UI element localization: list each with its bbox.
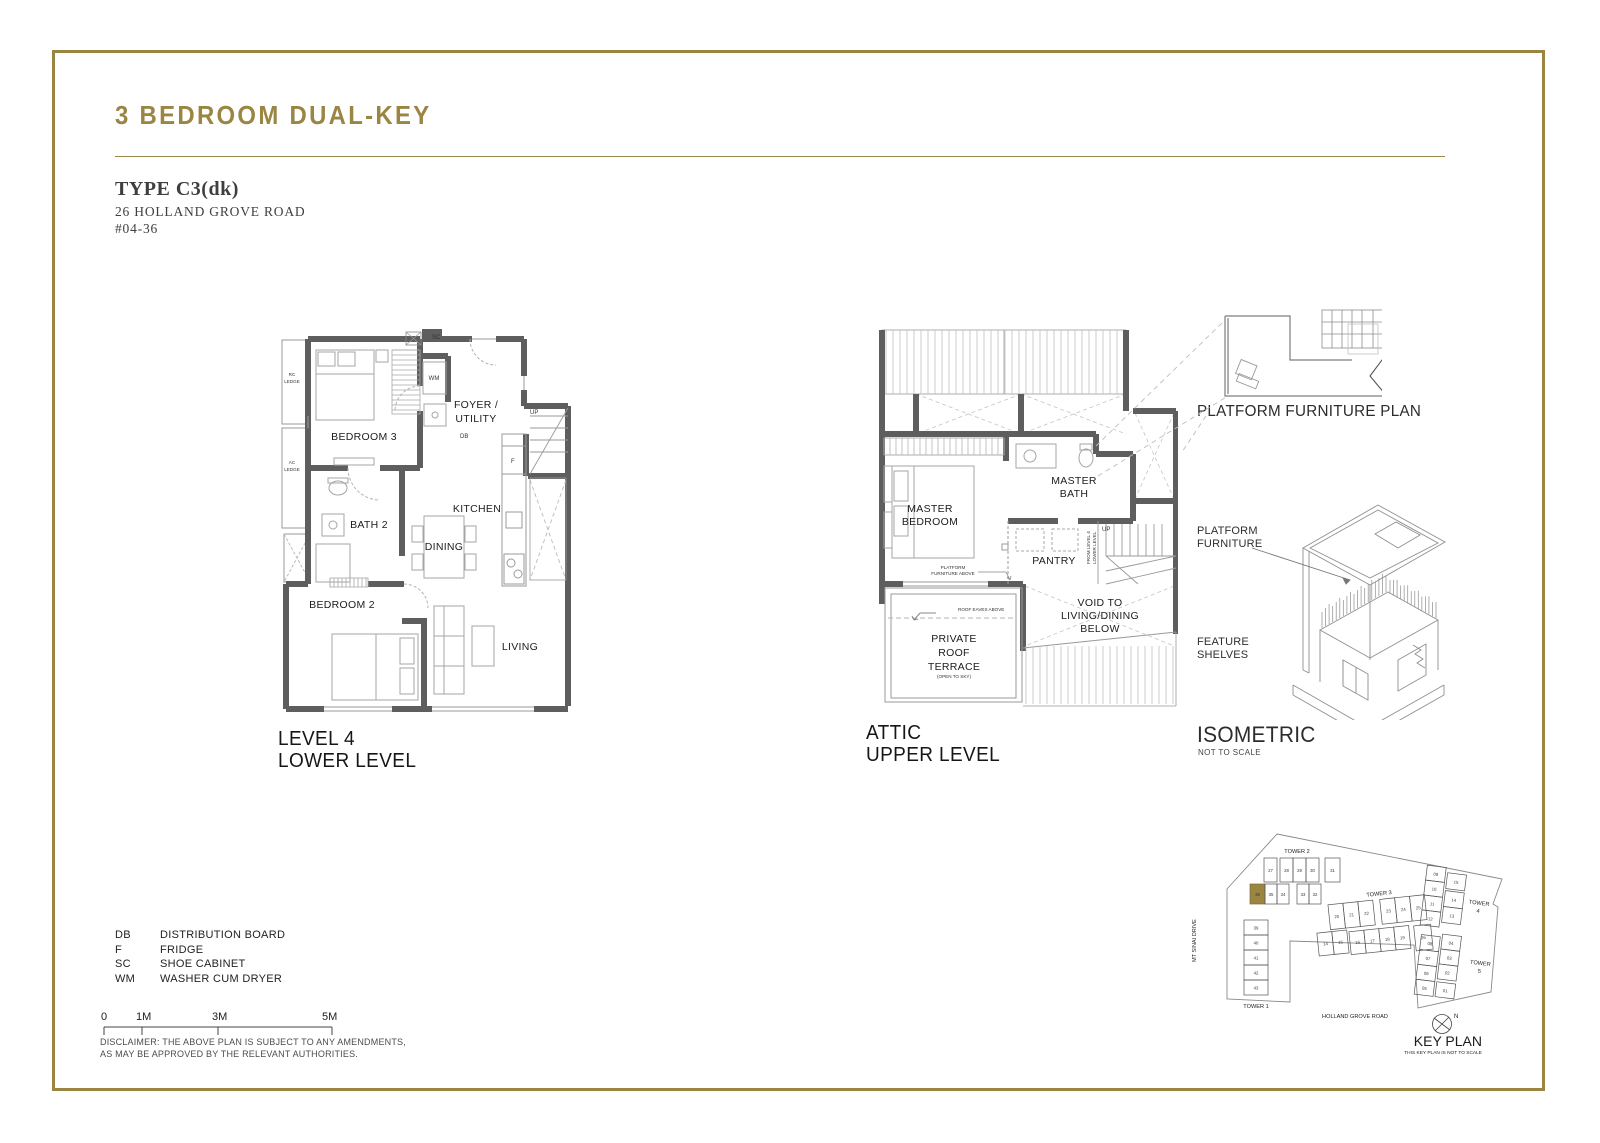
bedroom3-furniture	[316, 350, 388, 465]
isometric-title: ISOMETRIC	[1197, 722, 1316, 748]
svg-text:07: 07	[1425, 956, 1431, 962]
svg-text:TERRACE: TERRACE	[928, 661, 980, 673]
svg-text:29: 29	[1297, 868, 1302, 873]
kitchen-counter	[502, 434, 526, 586]
svg-text:34: 34	[1281, 892, 1286, 897]
svg-text:18: 18	[1385, 937, 1391, 943]
svg-text:LIVING/DINING: LIVING/DINING	[1061, 610, 1139, 622]
title-divider	[115, 156, 1445, 157]
svg-text:01: 01	[1443, 988, 1449, 994]
svg-text:15: 15	[1338, 939, 1344, 945]
svg-text:BEDROOM: BEDROOM	[902, 516, 958, 528]
platform-furniture-plan	[1192, 298, 1382, 413]
svg-text:17: 17	[1370, 938, 1376, 944]
platform-stair-grid	[1322, 310, 1382, 394]
wm-label: WM	[429, 376, 440, 382]
keyplan-subtitle: THIS KEY PLAN IS NOT TO SCALE	[1404, 1050, 1482, 1056]
bath2-label: BATH 2	[350, 519, 388, 531]
svg-text:ROOF: ROOF	[938, 647, 970, 659]
scale-bar-line	[104, 1027, 332, 1035]
roof-hatch	[882, 330, 1126, 394]
unit-type-label: TYPE C3(dk)	[115, 178, 239, 201]
svg-text:FURNITURE ABOVE: FURNITURE ABOVE	[931, 571, 974, 576]
tower2-label: TOWER 2	[1284, 849, 1309, 855]
legend-row: SC SHOE CABINET	[115, 957, 285, 972]
room-labels: RC LEDGE AC LEDGE BEDROOM 3 BATH 2 FOYER…	[284, 335, 538, 653]
address-line: 26 HOLLAND GROVE ROAD	[115, 204, 305, 220]
attic-up-label: UP	[1102, 527, 1110, 533]
from-level-label: FROM LEVEL 4	[1086, 531, 1091, 564]
platform-above-label: PLATFORM	[941, 565, 966, 570]
svg-text:02: 02	[1445, 970, 1451, 976]
tower5-label: TOWER	[1470, 960, 1491, 968]
svg-text:19: 19	[1400, 935, 1406, 941]
svg-text:33: 33	[1301, 892, 1306, 897]
svg-text:0: 0	[101, 1011, 107, 1023]
roof-eaves-label: ROOF EAVES ABOVE	[958, 607, 1004, 612]
void-label: VOID TO	[1078, 597, 1123, 609]
utility-fixtures	[423, 362, 446, 426]
svg-text:21: 21	[1349, 912, 1355, 918]
living-furniture	[434, 606, 494, 694]
db-label: DB	[460, 434, 468, 440]
svg-text:27: 27	[1268, 868, 1273, 873]
isometric-subtitle: NOT TO SCALE	[1198, 748, 1261, 757]
svg-text:UTILITY: UTILITY	[455, 413, 496, 425]
bedroom2-label: BEDROOM 2	[309, 599, 375, 611]
tower4-label: TOWER	[1468, 900, 1489, 908]
isometric-drawing	[1248, 470, 1448, 720]
terrace-border	[885, 588, 1022, 702]
svg-text:04: 04	[1448, 940, 1454, 946]
tower1-label: TOWER 1	[1243, 1004, 1268, 1010]
bedroom2-furniture	[332, 634, 418, 700]
svg-text:30: 30	[1310, 868, 1315, 873]
tower1: 39 40 41 42 43 TOWER 1	[1243, 920, 1268, 1010]
platform-plan-title: PLATFORM FURNITURE PLAN	[1197, 403, 1421, 421]
svg-text:31: 31	[1330, 868, 1335, 873]
svg-text:LEDGE: LEDGE	[284, 467, 300, 472]
pfa-leader	[978, 572, 1011, 580]
north-compass: N	[1433, 1014, 1459, 1034]
svg-text:5: 5	[1477, 969, 1481, 975]
svg-text:43: 43	[1254, 986, 1259, 991]
svg-text:23: 23	[1386, 908, 1392, 914]
svg-text:39: 39	[1254, 926, 1259, 931]
attic-wardrobe	[884, 438, 1004, 455]
platform-chair	[1236, 360, 1259, 389]
iso-feature-shelves-label: FEATURE SHELVES	[1197, 636, 1249, 662]
svg-text:42: 42	[1254, 971, 1259, 976]
svg-text:14: 14	[1451, 897, 1457, 903]
svg-text:LOWER LEVEL: LOWER LEVEL	[1092, 531, 1097, 564]
tower5: 08 07 06 05 04 03 02 01 TOWER 5	[1414, 932, 1493, 1003]
living-label: LIVING	[502, 641, 538, 653]
master-bath-fixtures	[1016, 444, 1093, 468]
svg-text:24: 24	[1401, 907, 1407, 913]
legend-row: DB DISTRIBUTION BOARD	[115, 928, 285, 943]
f-label: F	[511, 459, 515, 465]
svg-text:08: 08	[1427, 941, 1433, 947]
void-hatch	[1023, 632, 1176, 706]
terrace-label: PRIVATE	[931, 633, 976, 645]
svg-text:22: 22	[1364, 911, 1370, 917]
rc-ledge-label: RC	[289, 372, 296, 377]
svg-text:15: 15	[1453, 880, 1459, 886]
road-mt-sinai: MT SINAI DRIVE	[1192, 919, 1198, 962]
platform-outline	[1225, 313, 1382, 396]
iso-structure	[1293, 505, 1445, 720]
svg-text:09: 09	[1433, 872, 1439, 878]
svg-text:11: 11	[1430, 901, 1436, 907]
iso-balustrade-2	[1390, 580, 1436, 618]
legend-row: F FRIDGE	[115, 943, 285, 958]
svg-text:10: 10	[1431, 886, 1437, 892]
tower3-label: TOWER 3	[1366, 890, 1392, 899]
lower-level-caption: LEVEL 4 LOWER LEVEL	[278, 728, 416, 772]
highlighted-unit: 36	[1255, 892, 1260, 897]
tower3: TOWER 3 20 21 22 23 24 25 14 15 16 17 18…	[1313, 886, 1433, 961]
keyplan: TOWER 2 27 28 29 30 31 36 35 34 33 32 39…	[1180, 812, 1510, 1058]
ac-ledge-label: AC	[289, 460, 296, 465]
svg-text:28: 28	[1284, 868, 1289, 873]
svg-text:06: 06	[1424, 971, 1430, 977]
lower-level-floor-plan: RC LEDGE AC LEDGE BEDROOM 3 BATH 2 FOYER…	[272, 316, 572, 716]
road-holland-grove: HOLLAND GROVE ROAD	[1322, 1014, 1388, 1020]
bath2-fixtures	[316, 478, 350, 582]
page-title: 3 BEDROOM DUAL-KEY	[115, 100, 431, 131]
svg-text:05: 05	[1422, 986, 1428, 992]
svg-text:41: 41	[1254, 956, 1259, 961]
svg-text:35: 35	[1269, 892, 1274, 897]
svg-text:BELOW: BELOW	[1080, 623, 1119, 635]
svg-text:4: 4	[1476, 909, 1480, 915]
tower2: TOWER 2 27 28 29 30 31 36 35 34 33 32	[1250, 849, 1340, 904]
svg-text:40: 40	[1254, 941, 1259, 946]
attic-floor-plan: MASTER BEDROOM MASTER BATH PANTRY UP PLA…	[858, 316, 1178, 716]
master-bath-label: MASTER	[1051, 475, 1097, 487]
iso-balustrade	[1322, 574, 1386, 628]
svg-text:03: 03	[1447, 955, 1453, 961]
svg-text:5M: 5M	[322, 1011, 337, 1023]
up-label: UP	[530, 410, 538, 416]
north-label: N	[1454, 1014, 1458, 1020]
svg-text:12: 12	[1428, 916, 1434, 922]
foyer-label: FOYER /	[454, 399, 498, 411]
thin-lines	[903, 521, 1008, 586]
svg-text:13: 13	[1449, 913, 1455, 919]
svg-text:BATH: BATH	[1060, 488, 1088, 500]
svg-text:1M: 1M	[136, 1011, 151, 1023]
attic-caption: ATTIC UPPER LEVEL	[866, 722, 1000, 766]
keyplan-title: KEY PLAN	[1414, 1033, 1482, 1049]
sc-label: SC	[432, 335, 441, 341]
svg-text:(OPEN TO SKY): (OPEN TO SKY)	[937, 674, 972, 679]
stair-and-shaft	[530, 408, 568, 580]
svg-text:16: 16	[1355, 940, 1361, 946]
disclaimer: DISCLAIMER: THE ABOVE PLAN IS SUBJECT TO…	[100, 1036, 406, 1060]
svg-text:LEDGE: LEDGE	[284, 379, 300, 384]
pantry-cabinets	[1016, 529, 1078, 551]
legend: DB DISTRIBUTION BOARD F FRIDGE SC SHOE C…	[115, 928, 285, 986]
svg-text:32: 32	[1313, 892, 1318, 897]
bedroom3-label: BEDROOM 3	[331, 431, 397, 443]
dining-label: DINING	[425, 541, 464, 553]
svg-text:25: 25	[1416, 905, 1422, 911]
pantry-label: PANTRY	[1032, 555, 1075, 567]
legend-row: WM WASHER CUM DRYER	[115, 972, 285, 987]
kitchen-label: KITCHEN	[453, 503, 501, 515]
unit-number: #04-36	[115, 221, 158, 237]
iso-platform-furniture-label: PLATFORM FURNITURE	[1197, 525, 1262, 551]
svg-text:20: 20	[1334, 914, 1340, 920]
svg-text:3M: 3M	[212, 1011, 227, 1023]
master-bedroom-label: MASTER	[907, 503, 953, 515]
